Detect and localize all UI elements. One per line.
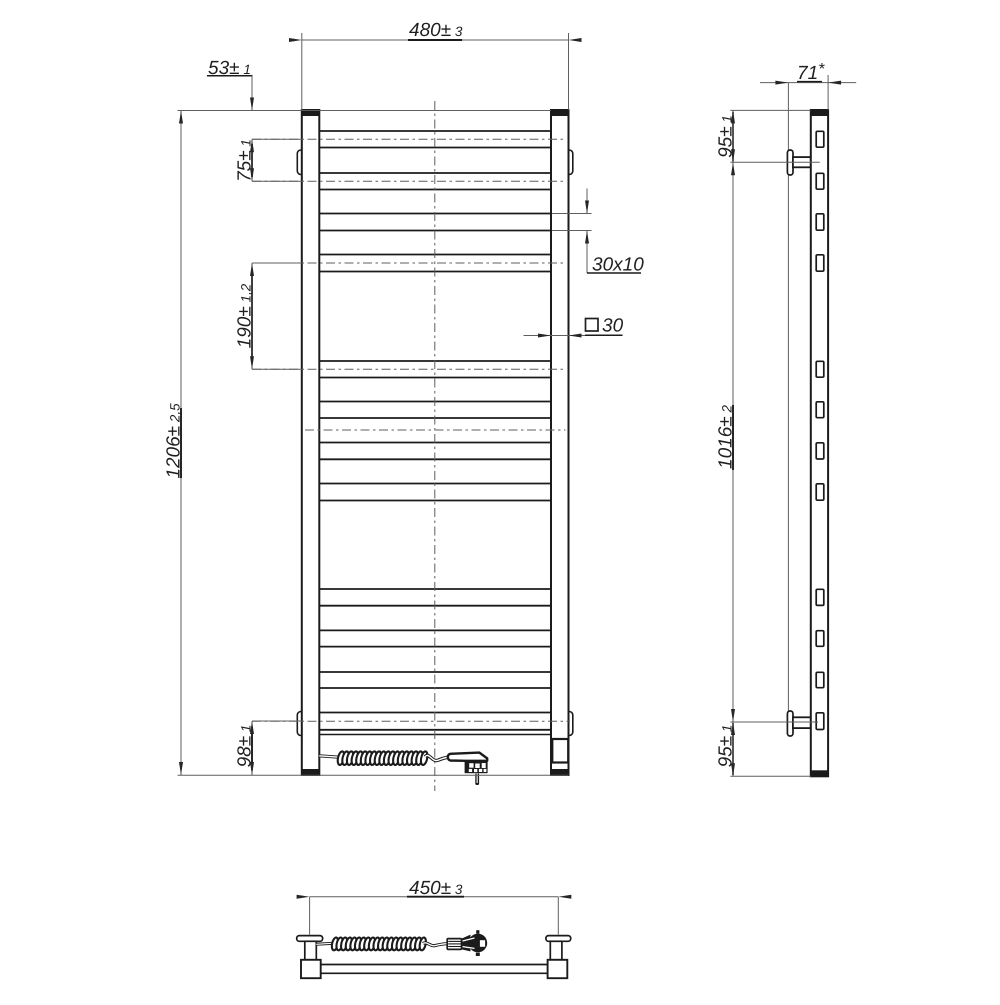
svg-text:95± 1: 95± 1: [716, 115, 737, 158]
svg-text:30x10: 30x10: [592, 255, 644, 276]
svg-text:1016± 2: 1016± 2: [716, 405, 737, 469]
svg-text:75± 1: 75± 1: [235, 139, 256, 182]
svg-text:1206± 2,5: 1206± 2,5: [164, 403, 185, 479]
svg-text:450± 3: 450± 3: [409, 878, 463, 899]
svg-text:30: 30: [602, 316, 624, 337]
svg-text:98± 1: 98± 1: [235, 725, 256, 768]
svg-text:480± 3: 480± 3: [409, 20, 463, 41]
svg-text:190± 1,2: 190± 1,2: [235, 283, 256, 348]
svg-text:95± 1: 95± 1: [716, 725, 737, 768]
